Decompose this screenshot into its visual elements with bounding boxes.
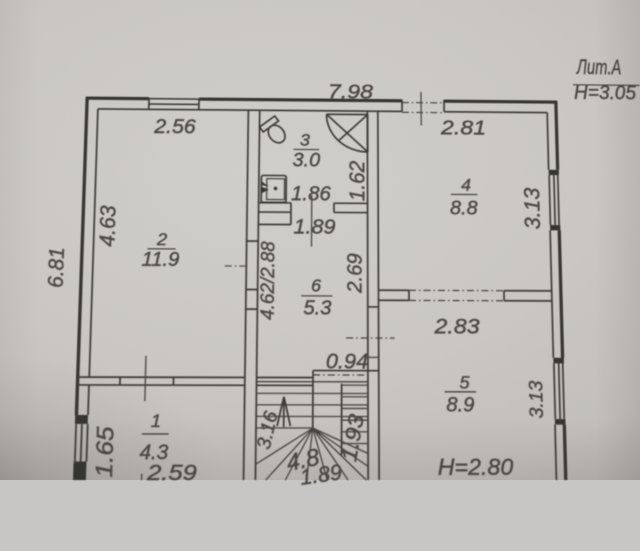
svg-text:2.81: 2.81	[440, 117, 486, 140]
svg-text:8.8: 8.8	[450, 197, 478, 219]
svg-text:1: 1	[151, 410, 162, 431]
svg-text:3: 3	[300, 130, 310, 150]
svg-text:5: 5	[459, 372, 470, 393]
svg-text:3.13: 3.13	[524, 380, 547, 418]
svg-text:7.98: 7.98	[328, 81, 374, 104]
svg-text:2.83: 2.83	[433, 315, 480, 339]
svg-text:1.89: 1.89	[293, 215, 335, 239]
svg-text:2: 2	[156, 229, 168, 249]
svg-text:2.59: 2.59	[146, 461, 198, 486]
svg-text:1.89: 1.89	[299, 461, 344, 490]
svg-text:1.86: 1.86	[291, 182, 331, 205]
svg-text:4.3: 4.3	[139, 441, 169, 465]
svg-text:1.62: 1.62	[346, 160, 370, 201]
svg-text:8.9: 8.9	[446, 394, 475, 417]
svg-text:4.63: 4.63	[95, 205, 120, 247]
svg-text:4.62/2.88: 4.62/2.88	[256, 241, 279, 320]
svg-text:0.94: 0.94	[326, 350, 368, 374]
svg-text:3.13: 3.13	[520, 188, 545, 230]
svg-text:Н=3.05: Н=3.05	[574, 82, 637, 104]
svg-text:6: 6	[311, 275, 321, 296]
svg-text:Лит.А: Лит.А	[575, 55, 622, 79]
svg-text:3.0: 3.0	[293, 149, 321, 171]
svg-text:4: 4	[461, 175, 471, 195]
svg-text:Н=2.80: Н=2.80	[438, 454, 514, 480]
svg-text:5.3: 5.3	[303, 297, 331, 320]
svg-text:6.81: 6.81	[45, 247, 70, 288]
svg-text:2.56: 2.56	[153, 115, 196, 138]
svg-text:1.65: 1.65	[90, 426, 118, 478]
svg-text:2.69: 2.69	[344, 253, 367, 294]
svg-text:11.9: 11.9	[141, 248, 180, 271]
